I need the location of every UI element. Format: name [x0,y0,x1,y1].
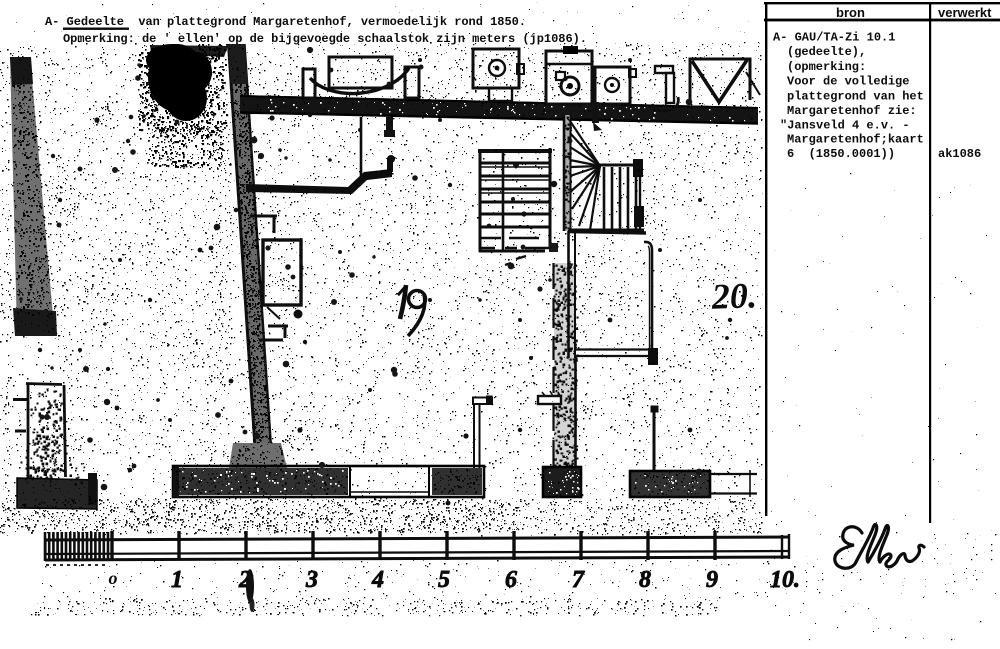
svg-text:verwerkt: verwerkt [938,5,992,20]
svg-text:A- GAU/TA-Zi 10.1: A- GAU/TA-Zi 10.1 [773,31,895,45]
svg-text:(opmerking:: (opmerking: [787,60,866,74]
svg-text:Margaretenhof zie:: Margaretenhof zie: [787,104,917,118]
svg-text:5: 5 [438,567,450,593]
svg-text:o: o [109,568,118,588]
svg-text:A- Gedeelte van plattegrond M: A- Gedeelte van plattegrond Margaretenho… [45,15,526,29]
svg-text:"Jansveld 4 e.v. -: "Jansveld 4 e.v. - [780,119,910,133]
svg-text:bron: bron [836,5,865,20]
svg-text:1: 1 [171,567,183,593]
svg-text:Opmerking: de ' ellen' op de b: Opmerking: de ' ellen' op de bijgevoegde… [63,32,587,46]
svg-text:8: 8 [639,567,651,593]
svg-text:9: 9 [706,567,718,593]
svg-text:7: 7 [572,567,585,593]
svg-text:Voor de volledige: Voor de volledige [787,75,909,89]
svg-text:Margaretenhof;kaart: Margaretenhof;kaart [787,133,924,147]
svg-text:6 (1850.0001)): 6 (1850.0001)) [787,147,895,161]
svg-text:(gedeelte),: (gedeelte), [787,45,866,59]
svg-text:20.: 20. [710,275,757,317]
svg-text:6: 6 [505,567,517,593]
svg-text:4: 4 [371,567,384,593]
svg-text:ak1086: ak1086 [938,147,981,161]
svg-text:plattegrond van het: plattegrond van het [787,90,924,104]
